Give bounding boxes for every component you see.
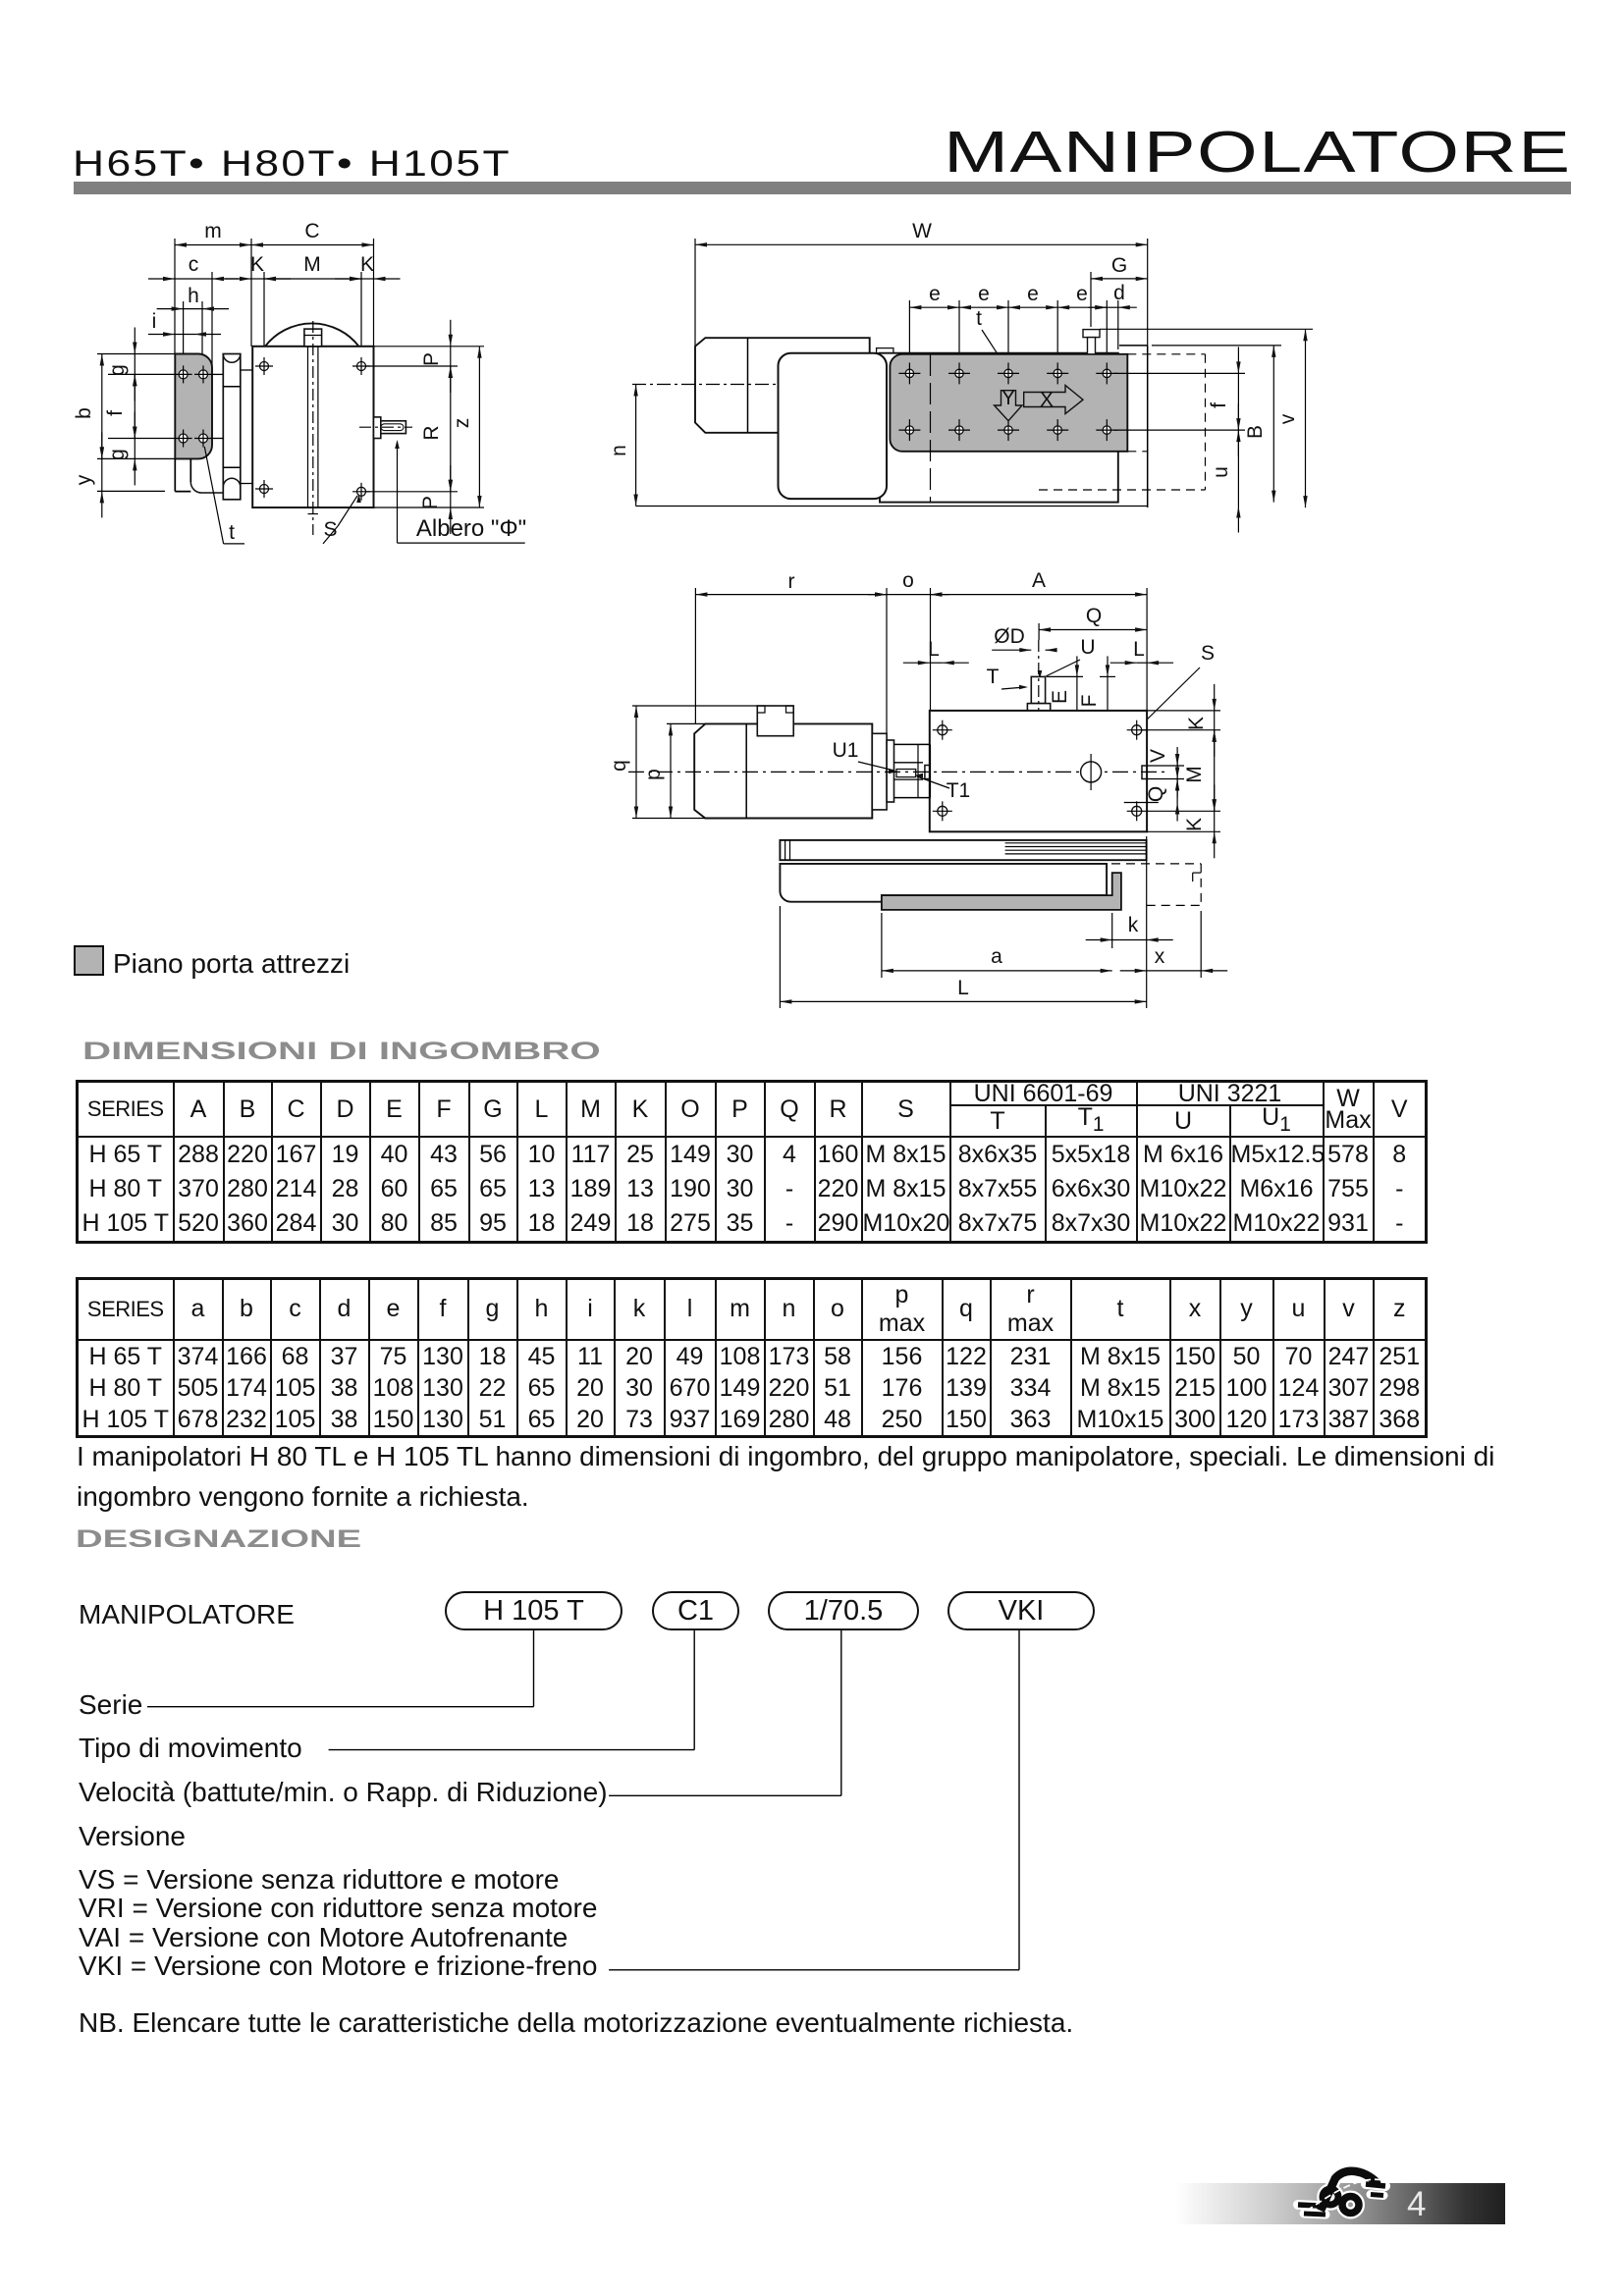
svg-text:P: P — [420, 352, 443, 366]
svg-text:C: C — [304, 220, 319, 242]
svg-text:Albero "Φ": Albero "Φ" — [416, 515, 526, 542]
svg-text:e: e — [929, 283, 941, 305]
svg-text:Q: Q — [1086, 605, 1102, 627]
svg-text:z: z — [451, 418, 473, 429]
svg-text:g: g — [106, 364, 129, 376]
svg-text:A: A — [1032, 569, 1046, 592]
svg-text:X: X — [1040, 389, 1054, 411]
svg-text:M: M — [1183, 766, 1206, 783]
svg-text:d: d — [1113, 282, 1125, 304]
svg-text:q: q — [608, 760, 630, 772]
svg-text:U: U — [1080, 636, 1095, 659]
svg-text:T1: T1 — [947, 779, 971, 802]
svg-text:m: m — [204, 220, 222, 242]
svg-text:E: E — [1049, 690, 1071, 704]
svg-text:f: f — [1208, 402, 1230, 408]
svg-text:L: L — [1133, 638, 1145, 661]
svg-text:F: F — [1078, 695, 1101, 708]
svg-text:y: y — [73, 474, 95, 485]
svg-text:b: b — [73, 407, 95, 419]
svg-text:S: S — [1201, 642, 1215, 665]
svg-text:V: V — [1147, 749, 1169, 763]
svg-text:t: t — [229, 521, 235, 544]
svg-text:n: n — [608, 445, 630, 456]
svg-text:h: h — [188, 285, 199, 307]
svg-text:o: o — [902, 569, 914, 592]
svg-text:K: K — [1185, 717, 1208, 730]
svg-text:T: T — [987, 666, 1000, 688]
svg-text:u: u — [1210, 466, 1232, 478]
svg-text:W: W — [912, 220, 932, 242]
svg-text:M: M — [303, 253, 321, 276]
svg-text:p: p — [642, 769, 665, 780]
svg-text:U1: U1 — [833, 739, 859, 762]
svg-text:v: v — [1276, 413, 1299, 424]
svg-text:Q: Q — [1145, 786, 1167, 802]
svg-text:i: i — [152, 310, 157, 333]
svg-text:f: f — [104, 410, 127, 416]
svg-text:a: a — [991, 945, 1002, 968]
svg-text:e: e — [1027, 283, 1039, 305]
svg-text:x: x — [1155, 945, 1165, 968]
svg-text:g: g — [106, 449, 129, 460]
svg-text:K: K — [250, 253, 264, 276]
svg-text:k: k — [1128, 914, 1139, 936]
svg-text:P: P — [419, 496, 442, 509]
svg-text:c: c — [189, 253, 199, 276]
svg-text:K: K — [360, 253, 374, 276]
svg-text:ØD: ØD — [994, 625, 1025, 648]
svg-text:Y: Y — [1001, 387, 1015, 409]
svg-text:t: t — [976, 307, 982, 330]
svg-text:B: B — [1244, 425, 1267, 439]
svg-text:e: e — [978, 283, 990, 305]
svg-text:K: K — [1183, 818, 1206, 831]
svg-text:L: L — [928, 638, 940, 661]
svg-text:G: G — [1111, 254, 1127, 277]
svg-text:R: R — [420, 425, 443, 440]
svg-text:e: e — [1076, 283, 1088, 305]
svg-text:r: r — [788, 570, 795, 593]
svg-text:L: L — [957, 977, 969, 999]
